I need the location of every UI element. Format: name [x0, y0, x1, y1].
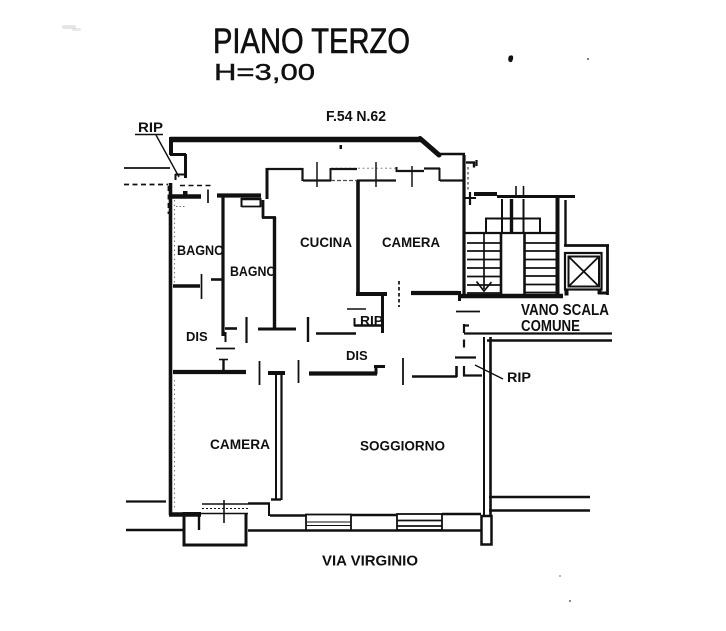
svg-text:F.54 N.62: F.54 N.62: [326, 108, 386, 125]
svg-text:CAMERA: CAMERA: [210, 437, 270, 452]
svg-text:PIANO TERZO: PIANO TERZO: [213, 21, 410, 61]
svg-text:RIP: RIP: [138, 119, 163, 135]
svg-text:RIP: RIP: [360, 313, 383, 328]
svg-text:VANO SCALA: VANO SCALA: [521, 302, 609, 319]
svg-text:DIS: DIS: [346, 348, 368, 363]
svg-text:RIP: RIP: [507, 370, 531, 385]
svg-text:CUCINA: CUCINA: [300, 235, 352, 250]
svg-text:BAGNO: BAGNO: [230, 264, 276, 279]
svg-text:SOGGIORNO: SOGGIORNO: [360, 439, 445, 454]
svg-text:BAGNO: BAGNO: [177, 243, 224, 258]
svg-text:CAMERA: CAMERA: [382, 235, 440, 250]
svg-text:VIA VIRGINIO: VIA VIRGINIO: [322, 554, 418, 570]
svg-text:DIS: DIS: [186, 329, 208, 344]
svg-text:H=3,00: H=3,00: [214, 59, 315, 85]
svg-text:COMUNE: COMUNE: [521, 318, 580, 335]
